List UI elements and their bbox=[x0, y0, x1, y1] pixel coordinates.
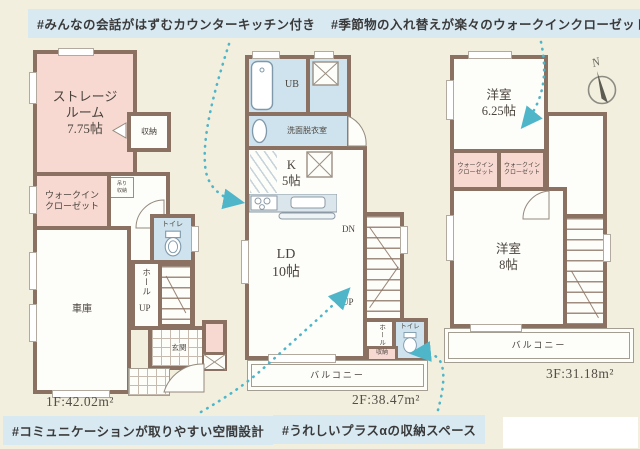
room-bath-label: UB bbox=[285, 79, 299, 92]
window bbox=[400, 226, 408, 254]
kitchen-hatch bbox=[250, 151, 277, 193]
stairs-3f bbox=[563, 214, 607, 328]
room-washroom-label: 洗面脱衣室 bbox=[287, 126, 327, 136]
shaft-x-icon bbox=[306, 151, 333, 178]
stairs-diagonal bbox=[166, 276, 187, 314]
door-opening-triangle-icon bbox=[112, 122, 127, 139]
window bbox=[252, 51, 280, 59]
room-closet-label: 収納 bbox=[141, 127, 157, 137]
bedroom-door-arc-icon bbox=[521, 189, 551, 221]
sliding-window bbox=[268, 354, 336, 363]
room-living-label: LD 10帖 bbox=[272, 246, 300, 281]
tag-bottom-right: #うれしいプラスαの収納スペース bbox=[273, 415, 485, 444]
kitchen-counter-icon bbox=[249, 194, 337, 220]
room-toilet-2f-label: トイレ bbox=[400, 323, 420, 331]
window bbox=[29, 72, 37, 104]
hanging-storage-box: 吊り 収納 bbox=[110, 177, 134, 198]
window bbox=[29, 304, 37, 342]
room-wic-right-3f: ウォークイン クローゼット bbox=[497, 149, 547, 191]
room-garage-label: 車庫 bbox=[72, 304, 92, 317]
storage-2f-label: 収納 bbox=[376, 350, 388, 358]
balcony-3f: バルコニー bbox=[444, 328, 634, 363]
shaft-x-icon bbox=[312, 61, 339, 86]
room-toilet-1f: トイレ bbox=[150, 214, 195, 264]
room-bedroom625-3f: 洋室 6.25帖 bbox=[450, 55, 548, 153]
window bbox=[58, 48, 94, 56]
room-wic-1f: ウォークイン クローゼット bbox=[33, 172, 111, 230]
room-entrance-label: 玄関 bbox=[171, 343, 188, 352]
window bbox=[446, 80, 454, 120]
window bbox=[29, 186, 37, 214]
area-label-1f: 1F:42.02m² bbox=[46, 394, 114, 410]
window bbox=[468, 51, 512, 59]
room-garage-1f: 車庫 bbox=[33, 226, 131, 394]
stairs-down-label: DN bbox=[342, 224, 355, 235]
washroom-door-arc-icon bbox=[346, 114, 368, 148]
stairs-up-label: UP bbox=[342, 297, 354, 308]
tag-top-right: #季節物の入れ替えが楽々のウォークインクローゼット bbox=[322, 9, 640, 38]
tag-bottom-left: #コミュニケーションが取りやすい空間設計 bbox=[3, 416, 273, 445]
window bbox=[603, 234, 611, 262]
area-label-3f: 3F:31.18m² bbox=[546, 366, 614, 382]
balcony-3f-label: バルコニー bbox=[512, 340, 567, 351]
toilet-icon bbox=[162, 230, 184, 258]
window bbox=[29, 252, 37, 290]
toilet-icon bbox=[401, 331, 419, 355]
area-label-2f: 2F:38.47m² bbox=[352, 392, 420, 408]
balcony-2f: バルコニー bbox=[247, 360, 428, 391]
room-wic-label: ウォークイン クローゼット bbox=[45, 190, 99, 213]
room-bedroom625-label: 洋室 6.25帖 bbox=[482, 88, 516, 119]
stairs-diagonal bbox=[571, 271, 599, 318]
window bbox=[241, 240, 249, 284]
stairs-2f bbox=[363, 212, 404, 322]
hanging-storage-label: 吊り 収納 bbox=[117, 181, 127, 194]
room-bedroom8-label: 洋室 8帖 bbox=[496, 242, 521, 273]
arrow-kitchen bbox=[205, 44, 240, 202]
tag-top-left: #みんなの会話がはずむカウンターキッチン付き bbox=[28, 9, 324, 38]
entrance-door-arc-icon bbox=[162, 362, 206, 394]
window bbox=[446, 215, 454, 261]
compass-icon bbox=[580, 66, 624, 110]
floorplan-page: ストレージ ルーム 7.75帖 収納 吊り 収納 ウォークイン クローゼット 車… bbox=[0, 0, 640, 449]
stairs-diagonal bbox=[369, 267, 398, 308]
hall-1f-label: ホール bbox=[141, 268, 152, 297]
bathtub-icon bbox=[250, 60, 274, 111]
hall-1f-up-label: UP bbox=[139, 303, 151, 314]
hall-2f-label: ホール bbox=[376, 324, 384, 347]
window bbox=[191, 226, 199, 252]
stairs-1f bbox=[158, 262, 194, 328]
room-wic-right-label: ウォークイン クローゼット bbox=[504, 163, 540, 178]
room-wic-left-3f: ウォークイン クローゼット bbox=[450, 149, 501, 191]
shoe-closet-1f bbox=[202, 320, 227, 356]
window bbox=[470, 324, 522, 332]
room-kitchen-label: K 5帖 bbox=[282, 158, 301, 189]
stairs-diagonal bbox=[369, 227, 398, 268]
sink-icon bbox=[251, 118, 268, 144]
blank-white-box bbox=[503, 417, 638, 448]
room-wic-left-label: ウォークイン クローゼット bbox=[457, 163, 493, 178]
balcony-2f-label: バルコニー bbox=[310, 370, 365, 381]
room-closet-1f: 収納 bbox=[127, 112, 171, 152]
window bbox=[314, 51, 334, 59]
room-storage-1f: ストレージ ルーム 7.75帖 bbox=[33, 50, 137, 176]
room-toilet-label: トイレ bbox=[162, 220, 183, 229]
room-storage-label: ストレージ ルーム 7.75帖 bbox=[53, 89, 118, 138]
